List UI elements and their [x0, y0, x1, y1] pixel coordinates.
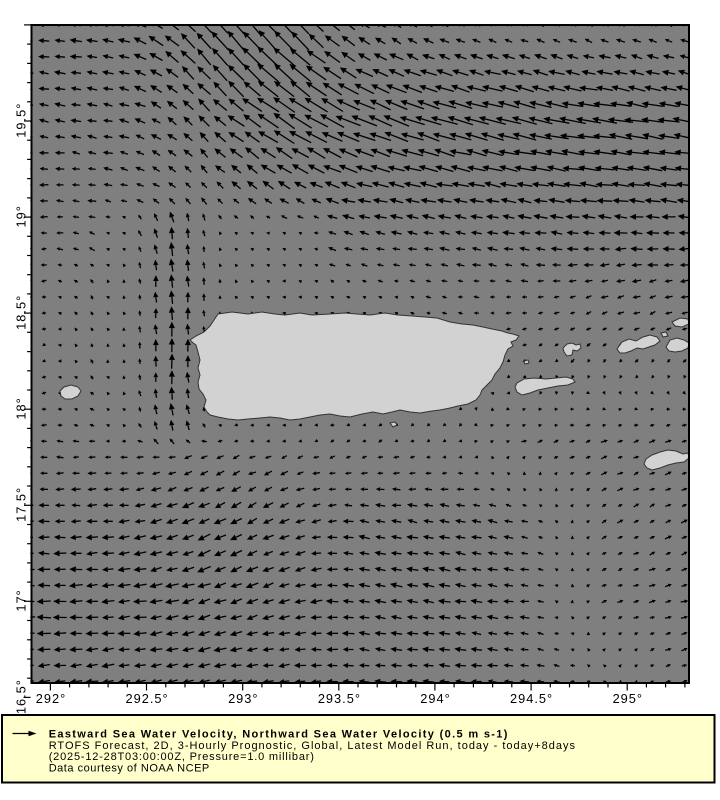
svg-text:RTOFS Forecast, 2D, 3-Hourly P: RTOFS Forecast, 2D, 3-Hourly Prognostic,…	[49, 740, 576, 752]
svg-text:17°: 17°	[14, 589, 29, 611]
svg-text:18.5°: 18.5°	[14, 295, 29, 330]
svg-text:16.5°: 16.5°	[14, 679, 29, 714]
svg-text:292°: 292°	[36, 691, 66, 706]
svg-text:293.5°: 293.5°	[318, 691, 361, 706]
svg-text:295°: 295°	[613, 691, 643, 706]
svg-text:17.5°: 17.5°	[14, 487, 29, 522]
svg-text:Eastward Sea Water Velocity, N: Eastward Sea Water Velocity, Northward S…	[49, 729, 509, 741]
svg-text:19.5°: 19.5°	[14, 103, 29, 138]
svg-text:294°: 294°	[420, 691, 450, 706]
svg-text:18°: 18°	[14, 397, 29, 419]
svg-text:19°: 19°	[14, 205, 29, 227]
svg-text:(2025-12-28T03:00:00Z, Pressur: (2025-12-28T03:00:00Z, Pressure=1.0 mill…	[49, 751, 315, 763]
svg-text:292.5°: 292.5°	[126, 691, 169, 706]
svg-text:294.5°: 294.5°	[510, 691, 553, 706]
svg-text:Data courtesy of NOAA NCEP: Data courtesy of NOAA NCEP	[49, 762, 210, 774]
svg-text:293°: 293°	[228, 691, 258, 706]
